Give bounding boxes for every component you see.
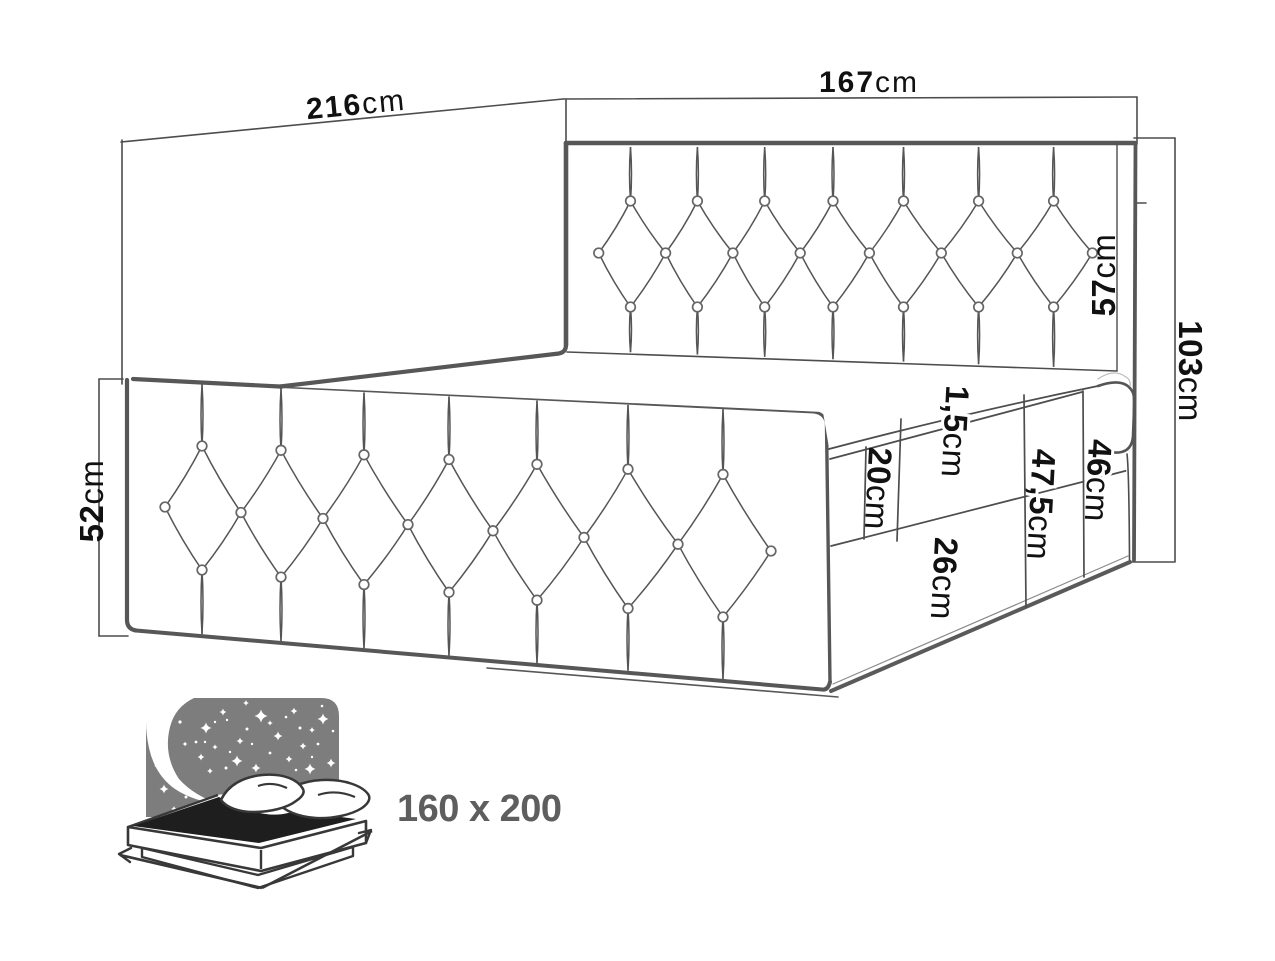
svg-text:57cm: 57cm — [1085, 234, 1122, 317]
svg-text:47,5cm: 47,5cm — [1020, 448, 1063, 561]
svg-text:103cm: 103cm — [1172, 320, 1209, 422]
svg-text:1,5cm: 1,5cm — [935, 385, 977, 479]
svg-text:26cm: 26cm — [924, 536, 965, 621]
svg-text:52cm: 52cm — [73, 460, 110, 543]
svg-text:160 x 200: 160 x 200 — [397, 788, 562, 830]
svg-text:167cm: 167cm — [819, 66, 919, 99]
